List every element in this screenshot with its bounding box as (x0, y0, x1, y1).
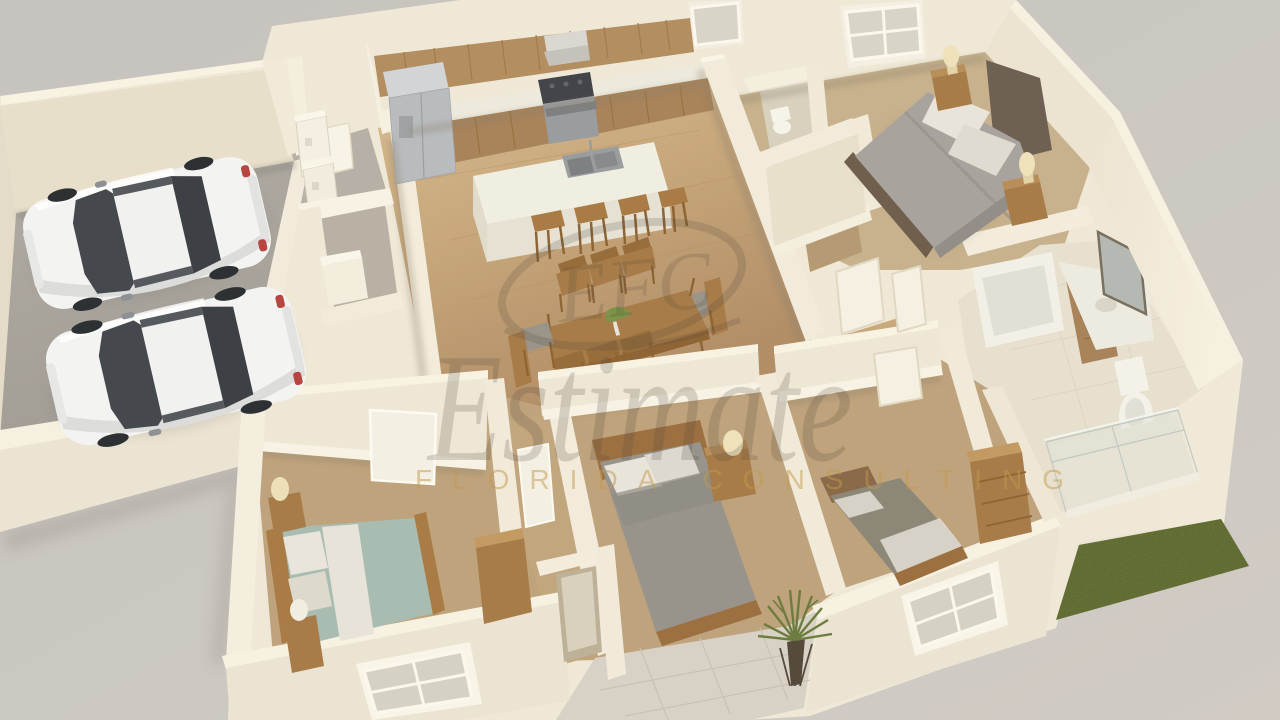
svg-text:FLORIDA CONSULTING: FLORIDA CONSULTING (415, 464, 1084, 495)
